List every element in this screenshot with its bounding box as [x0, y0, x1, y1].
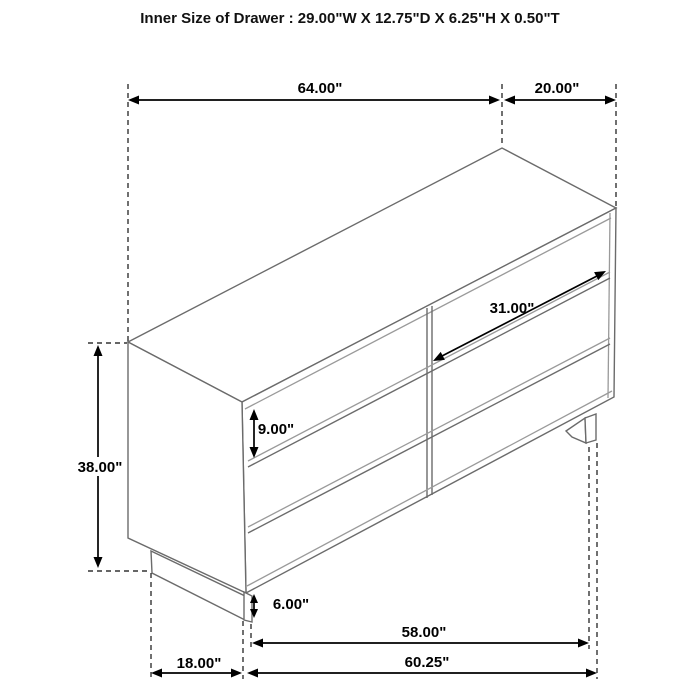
dim-label-top-width: 64.00" — [298, 80, 343, 97]
arrowhead — [128, 96, 139, 105]
arrowhead — [504, 96, 515, 105]
arrowhead — [247, 669, 258, 678]
arrowhead — [231, 669, 242, 678]
dim-label-drawer-width: 31.00" — [490, 300, 535, 317]
arrowhead — [94, 557, 103, 568]
arrowhead — [151, 669, 162, 678]
arrowhead — [94, 345, 103, 356]
diagram-canvas: 64.00" 20.00" 38.00" 9.00" 31.00" 6.00" … — [0, 0, 700, 700]
dim-label-height: 38.00" — [78, 459, 123, 476]
left-base-panel-front — [244, 592, 252, 622]
dim-label-overall-width: 60.25" — [405, 654, 450, 671]
arrowhead — [605, 96, 616, 105]
dim-label-top-depth: 20.00" — [535, 80, 580, 97]
arrowhead — [252, 639, 263, 648]
arrowhead — [586, 669, 597, 678]
dim-label-floor-depth: 18.00" — [177, 655, 222, 672]
dresser-dimension-diagram: Inner Size of Drawer : 29.00"W X 12.75"D… — [0, 0, 700, 700]
arrowhead — [489, 96, 500, 105]
dim-label-base-height: 6.00" — [273, 596, 309, 613]
dim-label-drawer-height: 9.00" — [258, 421, 294, 438]
dim-label-base-width: 58.00" — [402, 624, 447, 641]
arrowhead — [578, 639, 589, 648]
diagram-title: Inner Size of Drawer : 29.00"W X 12.75"D… — [0, 10, 700, 27]
right-base-panel-front — [585, 414, 596, 443]
dresser-drawing — [128, 148, 616, 622]
